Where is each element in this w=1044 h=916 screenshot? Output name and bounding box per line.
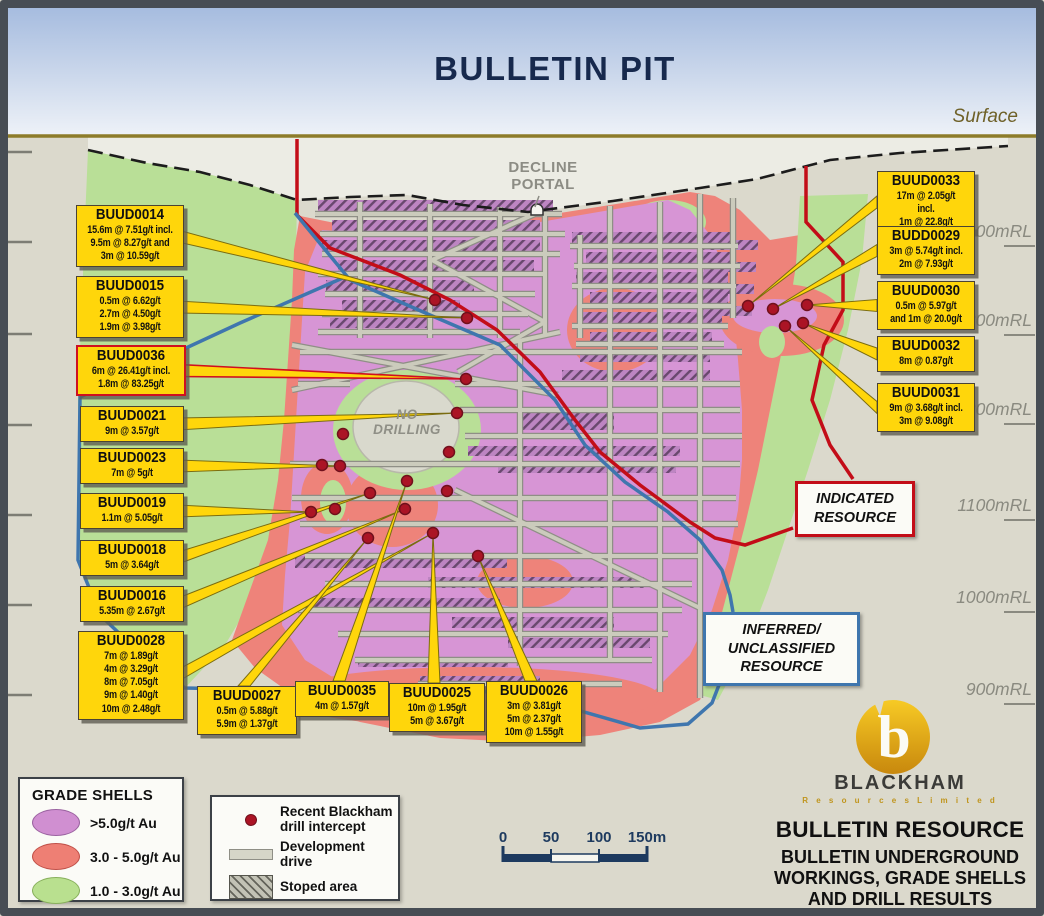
elevation-ticks-left xyxy=(8,152,32,695)
decline-portal-label: DECLINE PORTAL xyxy=(488,160,598,194)
drill-callout-BUUD0018: BUUD00185m @ 3.64g/t xyxy=(80,540,184,576)
drill-callout-BUUD0027: BUUD00270.5m @ 5.88g/t 5.9m @ 1.37g/t xyxy=(197,686,297,735)
callout-hole-id: BUUD0028 xyxy=(85,634,177,650)
indicated-resource-label: INDICATED RESOURCE xyxy=(795,481,915,537)
callout-hole-id: BUUD0036 xyxy=(84,349,178,365)
drill-intercept-dot xyxy=(743,301,754,312)
callout-intercepts: 15.6m @ 7.51g/t incl. 9.5m @ 8.27g/t and… xyxy=(87,224,173,264)
elevation-label: 900mRL xyxy=(966,679,1032,699)
drill-intercept-dot xyxy=(473,551,484,562)
callout-hole-id: BUUD0019 xyxy=(87,496,177,512)
drill-intercept-dot xyxy=(442,486,453,497)
callout-hole-id: BUUD0027 xyxy=(204,689,290,705)
callout-hole-id: BUUD0021 xyxy=(87,409,177,425)
callout-intercepts: 9m @ 3.68g/t incl. 3m @ 9.08g/t xyxy=(887,402,964,428)
legend-item-label: Stoped area xyxy=(280,880,357,895)
legend-title: GRADE SHELLS xyxy=(32,787,182,804)
callout-hole-id: BUDD0029 xyxy=(884,229,969,245)
drill-intercept-dot xyxy=(330,504,341,515)
drill-callout-BUUD0033: BUUD003317m @ 2.05g/t incl. 1m @ 22.8g/t xyxy=(877,171,975,233)
drill-intercept-dot xyxy=(428,528,439,539)
brand-name: BLACKHAM xyxy=(765,772,1035,795)
drill-callout-BUUD0019: BUUD00191.1m @ 5.05g/t xyxy=(80,493,184,529)
callout-intercepts: 10m @ 1.95g/t 5m @ 3.67g/t xyxy=(399,702,475,728)
drill-callout-BUUD0015: BUUD00150.5m @ 6.62g/t 2.7m @ 4.50g/t 1.… xyxy=(76,276,184,338)
branding-block: BLACKHAM R e s o u r c e s L i m i t e d… xyxy=(765,772,1035,910)
legend-item-label: 1.0 - 3.0g/t Au xyxy=(90,883,181,899)
drill-callout-BUDD0029: BUDD00293m @ 5.74g/t incl. 2m @ 7.93g/t xyxy=(877,226,975,275)
elevation-label: 1000mRL xyxy=(956,587,1032,607)
callout-hole-id: BUUD0025 xyxy=(396,686,479,702)
scale-label: 100 xyxy=(586,829,611,846)
callout-intercepts: 5.35m @ 2.67g/t xyxy=(91,605,173,618)
callout-hole-id: BUUD0031 xyxy=(884,386,969,402)
drill-intercept-dot xyxy=(802,300,813,311)
drill-intercept-dot xyxy=(461,374,472,385)
brand-subname: R e s o u r c e s L i m i t e d xyxy=(765,796,1035,805)
callout-hole-id: BUUD0030 xyxy=(884,284,969,300)
drill-intercept-icon xyxy=(245,814,257,826)
scale-label: 150m xyxy=(628,829,666,846)
drill-intercept-dot xyxy=(430,295,441,306)
callout-intercepts: 4m @ 1.57g/t xyxy=(305,700,379,713)
callout-intercepts: 0.5m @ 6.62g/t 2.7m @ 4.50g/t 1.9m @ 3.9… xyxy=(87,295,173,335)
callout-intercepts: 9m @ 3.57g/t xyxy=(91,425,173,438)
pink-shell-swatch xyxy=(32,843,80,870)
drill-intercept-dot xyxy=(400,504,411,515)
grade-shells-legend: GRADE SHELLS >5.0g/t Au 3.0 - 5.0g/t Au … xyxy=(18,777,184,902)
callout-intercepts: 8m @ 0.87g/t xyxy=(887,355,964,368)
legend-item-label: >5.0g/t Au xyxy=(90,815,157,831)
scale-bar: 050100150m xyxy=(499,829,666,862)
drill-intercept-dot xyxy=(363,533,374,544)
drill-intercept-dot xyxy=(317,460,328,471)
callout-intercepts: 1.1m @ 5.05g/t xyxy=(91,512,173,525)
development-drive-icon xyxy=(229,849,273,860)
inferred-resource-label: INFERRED/ UNCLASSIFIED RESOURCE xyxy=(703,612,860,686)
drill-intercept-dot xyxy=(780,321,791,332)
drill-intercept-dot xyxy=(306,507,317,518)
legend-item-label: 3.0 - 5.0g/t Au xyxy=(90,849,181,865)
callout-intercepts: 3m @ 5.74g/t incl. 2m @ 7.93g/t xyxy=(887,245,964,271)
scale-label: 0 xyxy=(499,829,507,846)
purple-shell-swatch xyxy=(32,809,80,836)
figure-subtitle: BULLETIN UNDERGROUND WORKINGS, GRADE SHE… xyxy=(765,847,1035,910)
callout-hole-id: BUUD0026 xyxy=(493,684,576,700)
drill-intercept-dot xyxy=(365,488,376,499)
callout-intercepts: 3m @ 3.81g/t 5m @ 2.37g/t 10m @ 1.55g/t xyxy=(496,700,572,740)
callout-intercepts: 6m @ 26.41g/t incl. 1.8m @ 83.25g/t xyxy=(88,365,174,391)
green-shell-swatch xyxy=(32,877,80,904)
drill-callout-BUUD0014: BUUD001415.6m @ 7.51g/t incl. 9.5m @ 8.2… xyxy=(76,205,184,267)
drill-intercept-dot xyxy=(402,476,413,487)
callout-hole-id: BUUD0033 xyxy=(884,174,969,190)
callout-hole-id: BUUD0035 xyxy=(302,684,383,700)
drill-callout-BUUD0032: BUUD00328m @ 0.87g/t xyxy=(877,336,975,372)
surface-label: Surface xyxy=(953,106,1018,128)
callout-hole-id: BUUD0032 xyxy=(884,339,969,355)
bulletin-pit-diagram: 1400mRL1300mRL1200mRL1100mRL1000mRL900mR… xyxy=(0,0,1044,916)
drill-intercept-dot xyxy=(338,429,349,440)
callout-intercepts: 0.5m @ 5.88g/t 5.9m @ 1.37g/t xyxy=(208,705,287,731)
callout-hole-id: BUUD0023 xyxy=(87,451,177,467)
callout-hole-id: BUUD0015 xyxy=(83,279,177,295)
drill-intercept-dot xyxy=(798,318,809,329)
drill-intercept-dot xyxy=(768,304,779,315)
stoped-area-icon xyxy=(229,875,273,899)
decline-portal-icon xyxy=(531,204,543,215)
callout-hole-id: BUUD0018 xyxy=(87,543,177,559)
drill-callout-BUUD0030: BUUD00300.5m @ 5.97g/t and 1m @ 20.0g/t xyxy=(877,281,975,330)
drill-callout-BUUD0036: BUUD00366m @ 26.41g/t incl. 1.8m @ 83.25… xyxy=(76,345,186,396)
callout-intercepts: 17m @ 2.05g/t incl. 1m @ 22.8g/t xyxy=(887,190,964,230)
drill-callout-BUUD0026: BUUD00263m @ 3.81g/t 5m @ 2.37g/t 10m @ … xyxy=(486,681,582,743)
drill-callout-BUUD0025: BUUD002510m @ 1.95g/t 5m @ 3.67g/t xyxy=(389,683,485,732)
legend-item-label: Development drive xyxy=(280,840,365,869)
drill-callout-BUUD0035: BUUD00354m @ 1.57g/t xyxy=(295,681,389,717)
drill-intercept-dot xyxy=(462,313,473,324)
drill-intercept-dot xyxy=(335,461,346,472)
blackham-logo: b xyxy=(856,700,930,774)
symbols-legend: Recent Blackham drill intercept Developm… xyxy=(210,795,400,901)
drill-callout-BUUD0023: BUUD00237m @ 5g/t xyxy=(80,448,184,484)
drill-callout-BUUD0021: BUUD00219m @ 3.57g/t xyxy=(80,406,184,442)
callout-hole-id: BUUD0016 xyxy=(87,589,177,605)
callout-hole-id: BUUD0014 xyxy=(83,208,177,224)
drill-callout-BUUD0016: BUUD00165.35m @ 2.67g/t xyxy=(80,586,184,622)
callout-intercepts: 0.5m @ 5.97g/t and 1m @ 20.0g/t xyxy=(887,300,964,326)
callout-intercepts: 5m @ 3.64g/t xyxy=(91,559,173,572)
drill-callout-BUUD0028: BUUD00287m @ 1.89g/t 4m @ 3.29g/t 8m @ 7… xyxy=(78,631,184,720)
legend-item-label: Recent Blackham drill intercept xyxy=(280,805,393,834)
no-drilling-label: NO DRILLING xyxy=(352,408,462,438)
scale-label: 50 xyxy=(543,829,560,846)
page-title: BULLETIN PIT xyxy=(90,50,1020,88)
callout-intercepts: 7m @ 5g/t xyxy=(91,467,173,480)
drill-callout-BUUD0031: BUUD00319m @ 3.68g/t incl. 3m @ 9.08g/t xyxy=(877,383,975,432)
figure-title: BULLETIN RESOURCE xyxy=(765,817,1035,843)
callout-intercepts: 7m @ 1.89g/t 4m @ 3.29g/t 8m @ 7.05g/t 9… xyxy=(89,650,173,716)
drill-intercept-dot xyxy=(444,447,455,458)
elevation-label: 1100mRL xyxy=(957,495,1032,515)
svg-text:b: b xyxy=(877,704,910,770)
